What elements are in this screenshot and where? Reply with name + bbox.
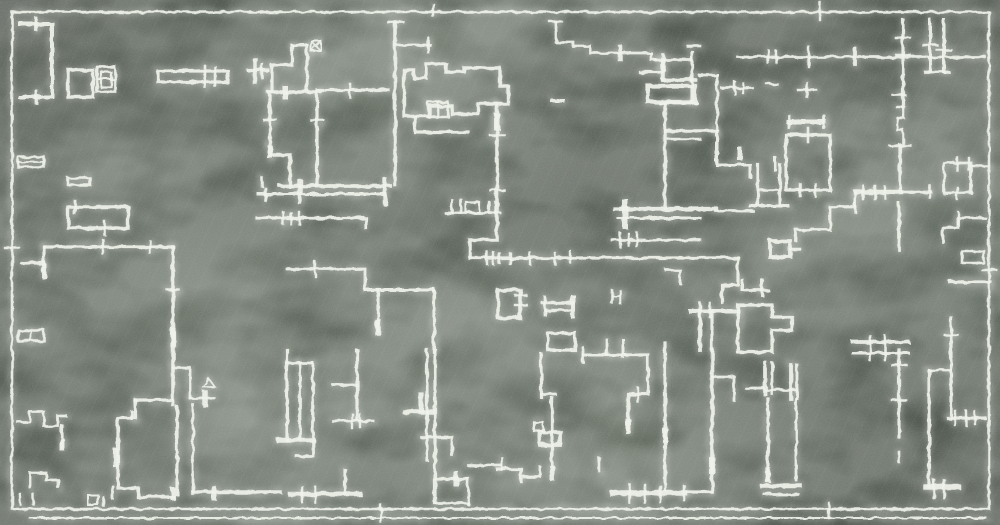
chalk-blueprint-drawing <box>0 0 1000 525</box>
chalk-grain-texture <box>0 0 1000 525</box>
chalkboard-photo <box>0 0 1000 525</box>
